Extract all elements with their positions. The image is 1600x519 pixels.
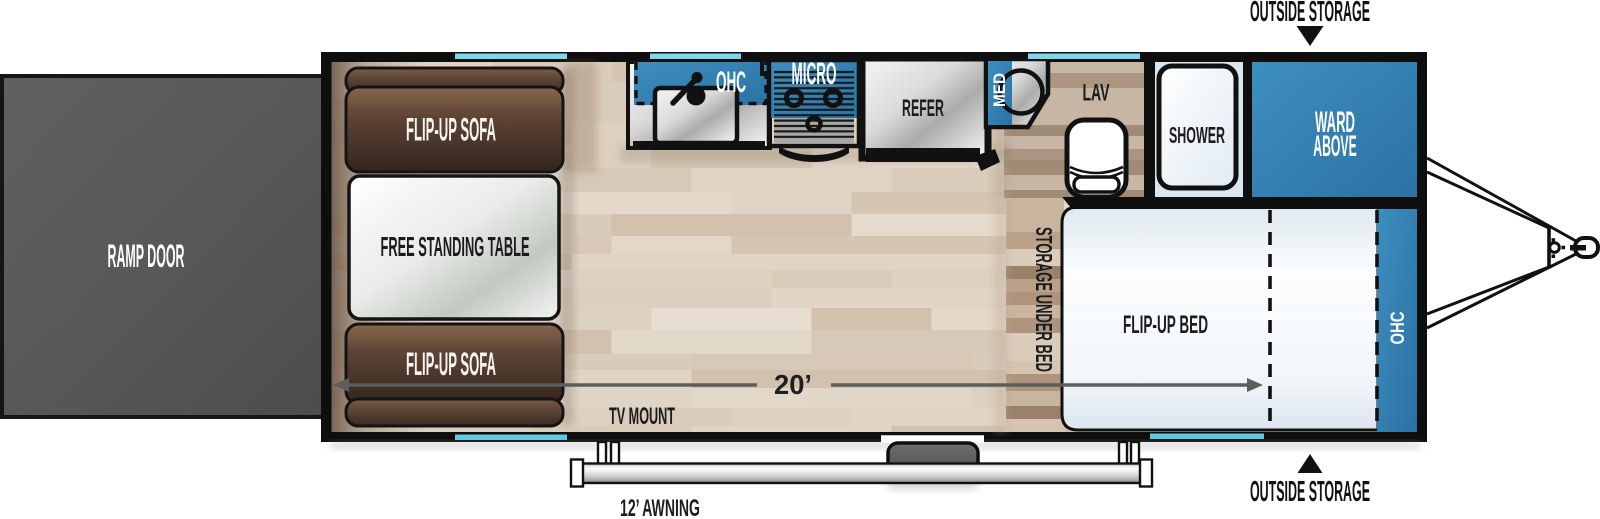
svg-text:SHOWER: SHOWER bbox=[1169, 122, 1225, 148]
svg-text:OHC: OHC bbox=[716, 66, 746, 99]
svg-text:FREE STANDING TABLE: FREE STANDING TABLE bbox=[381, 231, 530, 262]
svg-text:OUTSIDE STORAGE: OUTSIDE STORAGE bbox=[1250, 0, 1370, 28]
svg-text:OUTSIDE STORAGE: OUTSIDE STORAGE bbox=[1250, 476, 1370, 508]
svg-text:REFER: REFER bbox=[902, 96, 944, 122]
svg-text:12’ AWNING: 12’ AWNING bbox=[620, 495, 700, 519]
svg-text:RAMP DOOR: RAMP DOOR bbox=[108, 238, 185, 274]
svg-text:FLIP-UP SOFA: FLIP-UP SOFA bbox=[406, 346, 496, 382]
svg-text:FLIP-UP SOFA: FLIP-UP SOFA bbox=[406, 112, 496, 148]
svg-text:ABOVE: ABOVE bbox=[1313, 130, 1357, 163]
svg-text:LAV: LAV bbox=[1083, 80, 1110, 107]
svg-text:OHC: OHC bbox=[1387, 312, 1409, 345]
svg-text:MICRO: MICRO bbox=[792, 56, 837, 91]
svg-text:STORAGE UNDER BED: STORAGE UNDER BED bbox=[1031, 227, 1057, 372]
svg-text:TV MOUNT: TV MOUNT bbox=[609, 404, 675, 430]
svg-text:MED: MED bbox=[990, 73, 1009, 107]
svg-text:20’: 20’ bbox=[774, 369, 812, 400]
svg-text:FLIP-UP BED: FLIP-UP BED bbox=[1123, 311, 1208, 339]
